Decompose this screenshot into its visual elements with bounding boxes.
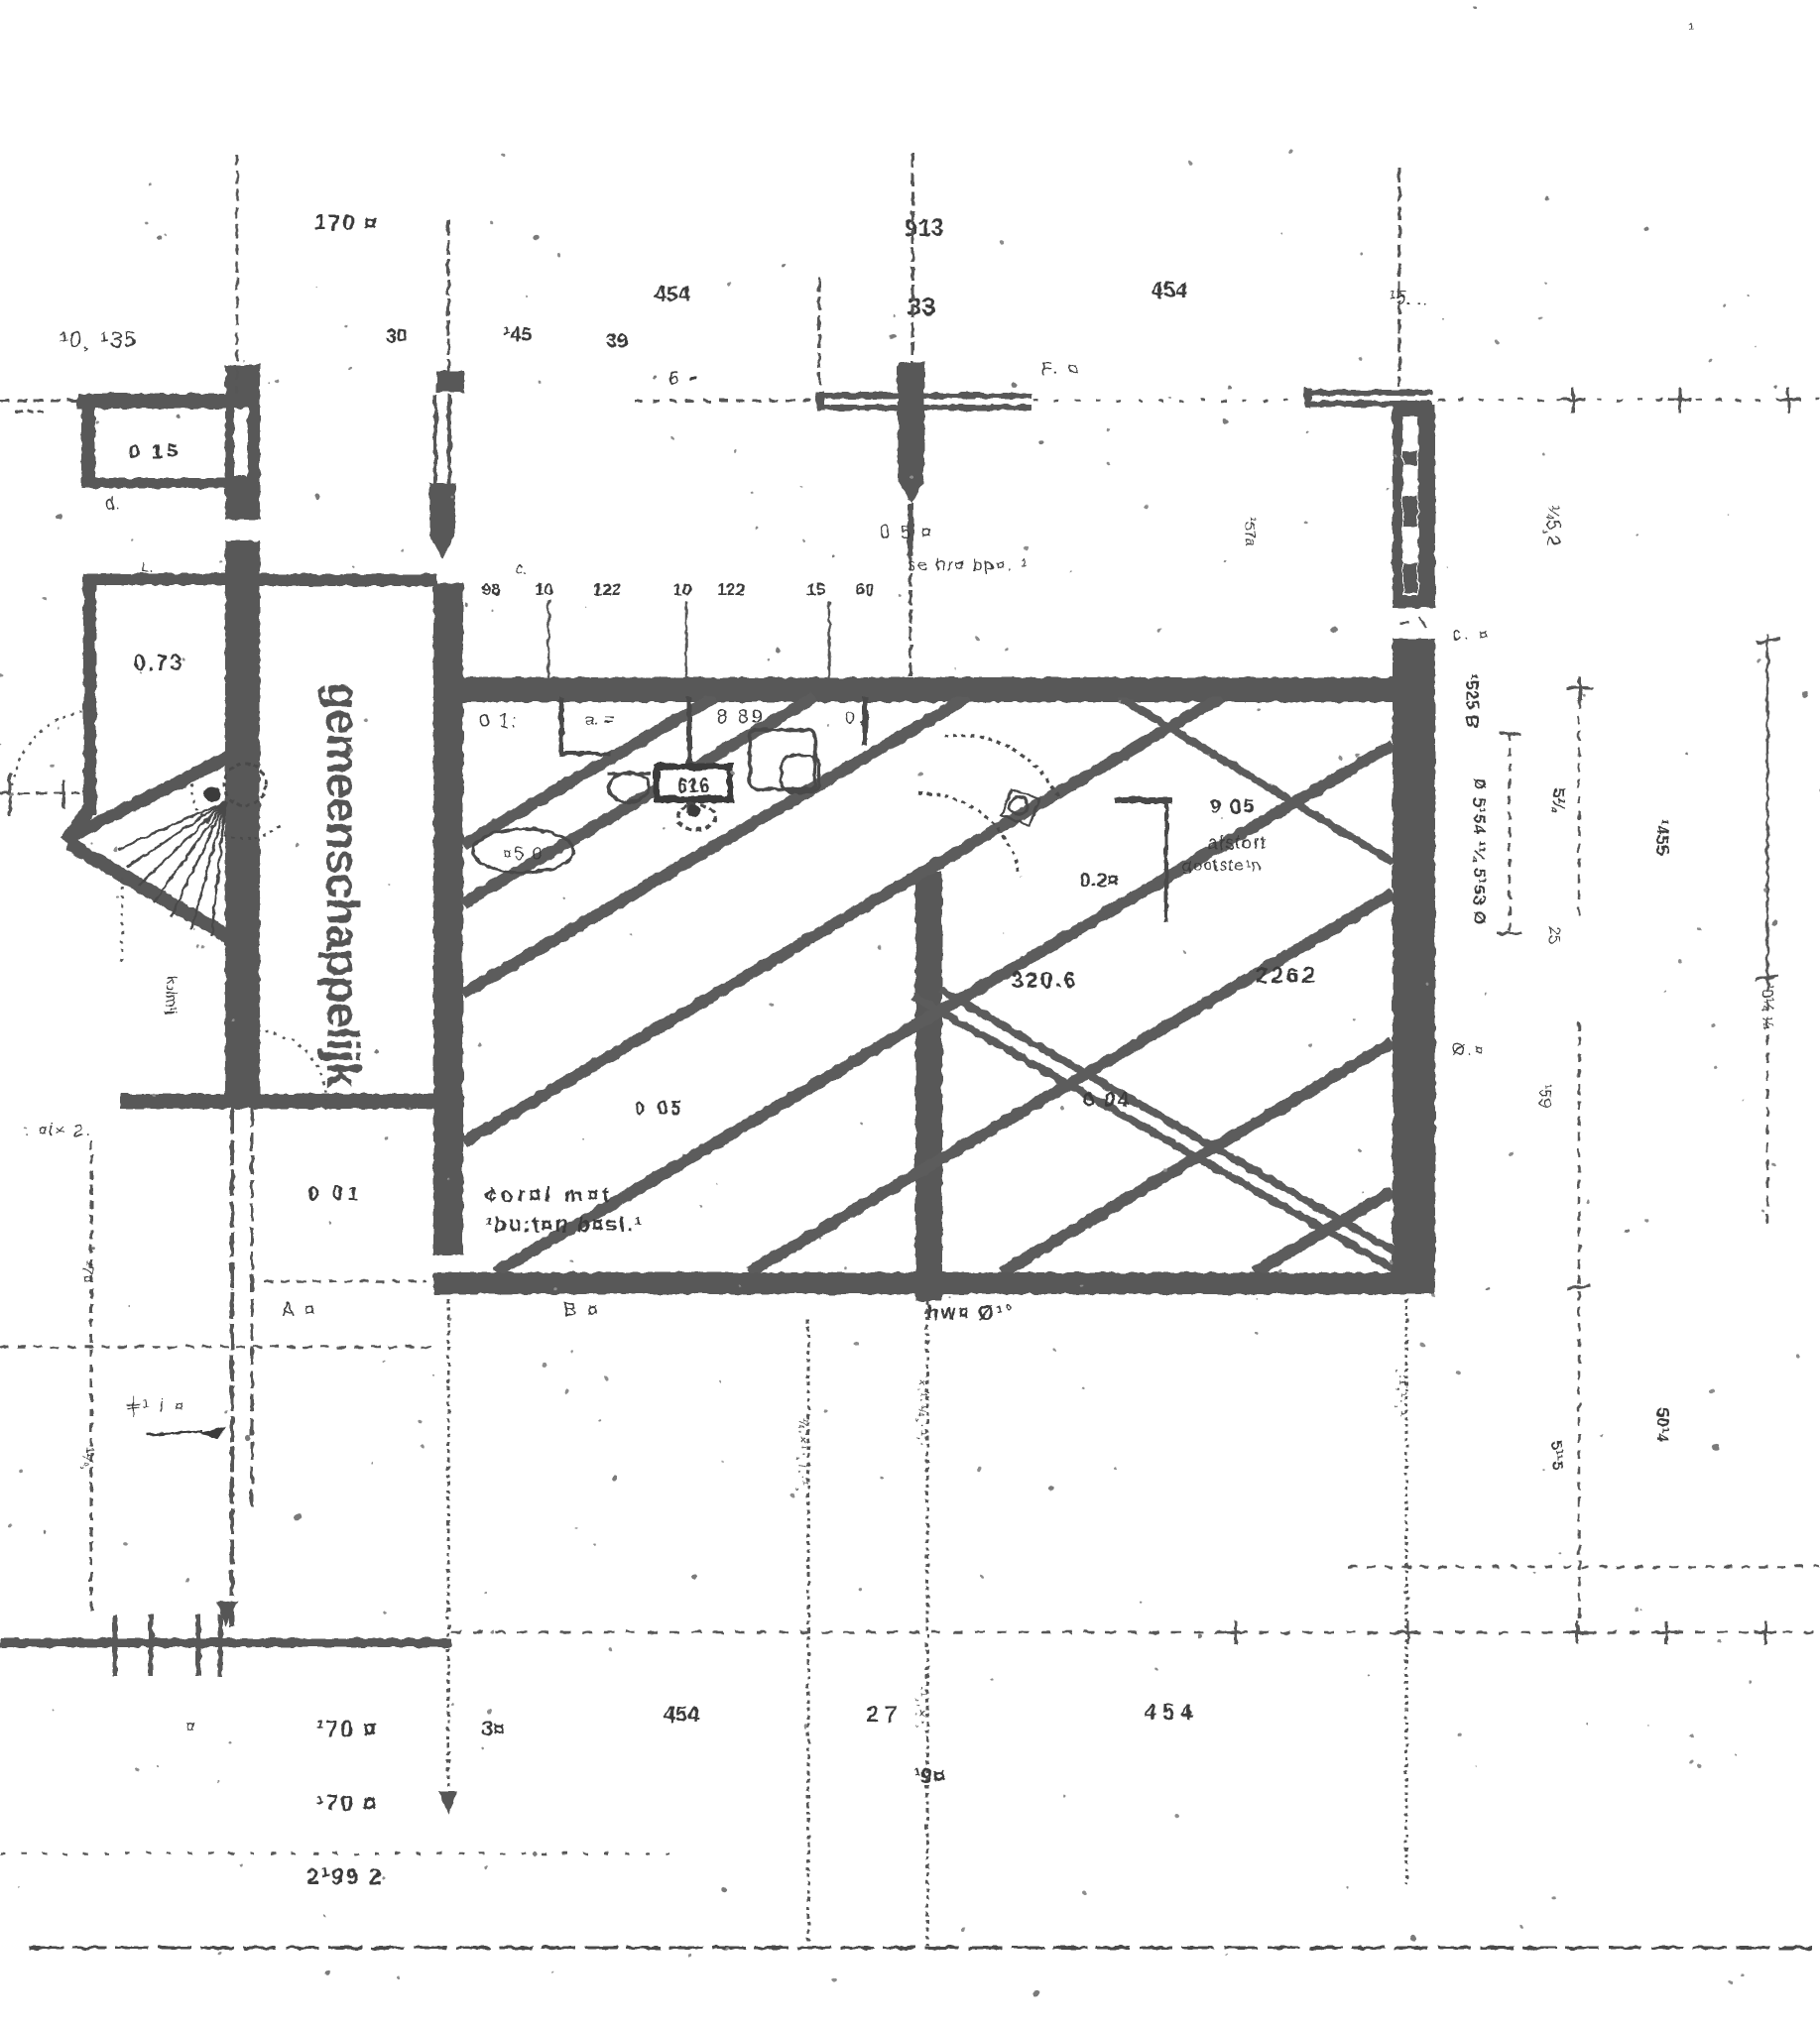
svg-text:10: 10	[673, 580, 692, 599]
svg-text:616: 616	[676, 776, 709, 797]
svg-text:F. ¤: F. ¤	[1041, 359, 1080, 378]
svg-text:¹45: ¹45	[504, 324, 533, 346]
svg-text:0.73: 0.73	[134, 651, 184, 675]
svg-text:320.6: 320.6	[1011, 967, 1078, 993]
svg-text:¢or¤l m¤t: ¢or¤l m¤t	[485, 1184, 613, 1207]
svg-text:0 1:: 0 1:	[479, 711, 519, 732]
svg-text:¹0¸ ¹35: ¹0¸ ¹35	[61, 327, 139, 353]
svg-text:¹5. ..: ¹5. ..	[1390, 289, 1427, 309]
svg-text:15: 15	[807, 580, 826, 599]
svg-text:hw¤ Ø¹°: hw¤ Ø¹°	[926, 1302, 1015, 1324]
svg-text:gootste¹n: gootste¹n	[1182, 856, 1262, 875]
svg-text:6 ╺: 6 ╺	[668, 368, 698, 390]
svg-text:2¹99 2: 2¹99 2	[306, 1863, 383, 1889]
svg-text:5¹¹5: 5¹¹5	[1547, 1440, 1566, 1470]
svg-text:2262: 2262	[1255, 962, 1317, 988]
svg-text:c. ¤: c. ¤	[1452, 625, 1491, 644]
svg-text:2 7: 2 7	[867, 1702, 898, 1727]
svg-text:¹57a: ¹57a	[1242, 517, 1259, 547]
svg-text:0 05: 0 05	[635, 1098, 685, 1120]
svg-text:0 5 ¤: 0 5 ¤	[880, 523, 934, 542]
svg-text:¹bu:t¤n b¤sl.¹: ¹bu:t¤n b¤sl.¹	[485, 1214, 644, 1237]
svg-text:0 ,: 0 ,	[845, 708, 864, 727]
svg-text:c.: c.	[516, 560, 528, 577]
svg-text:0 01: 0 01	[308, 1183, 363, 1205]
svg-text:454: 454	[655, 282, 691, 306]
svg-text:¹525 B: ¹525 B	[1462, 674, 1482, 728]
svg-text:913: 913	[905, 215, 944, 242]
svg-text:¹7¤: ¹7¤	[79, 1261, 96, 1283]
svg-text:60: 60	[856, 580, 875, 599]
svg-text:d.: d.	[105, 494, 119, 513]
svg-text:122: 122	[593, 580, 621, 599]
svg-text:39: 39	[606, 330, 628, 352]
svg-text:50¹4: 50¹4	[1653, 1408, 1672, 1443]
svg-text:5¼: 5¼	[1549, 788, 1568, 813]
svg-text:B ¤: B ¤	[563, 1300, 601, 1321]
svg-text:3¤: 3¤	[481, 1718, 505, 1740]
svg-text:¹70 ¤: ¹70 ¤	[316, 1716, 378, 1741]
svg-text:A ¤: A ¤	[282, 1300, 317, 1321]
svg-text:¹9¤: ¹9¤	[913, 1763, 945, 1788]
svg-text:·¹¸‚×·¸: ·¹¸‚×·¸	[915, 1686, 930, 1732]
svg-text:¤: ¤	[185, 1717, 195, 1736]
svg-text:454: 454	[664, 1702, 700, 1727]
svg-text:¹¼¸: ¹¼¸	[79, 1448, 96, 1471]
svg-text:30: 30	[386, 326, 407, 347]
svg-text:170 ¤: 170 ¤	[313, 210, 378, 235]
svg-text:0 15: 0 15	[129, 440, 182, 463]
svg-text:¹70 ¤: ¹70 ¤	[316, 1790, 378, 1816]
svg-text:¹59: ¹59	[1536, 1084, 1553, 1107]
svg-text:0 04: 0 04	[1083, 1089, 1132, 1112]
svg-text:454: 454	[1152, 278, 1188, 302]
svg-text:¸·¹‚ׂ¹·¸¹: ¸·¹‚ׂ¹·¸¹	[1395, 1369, 1409, 1417]
svg-text:98: 98	[482, 580, 501, 599]
svg-text:kدlm¹j: kدlm¹j	[163, 977, 180, 1015]
svg-text:a. =: a. =	[585, 710, 614, 729]
svg-text:afstort: afstort	[1207, 833, 1267, 854]
svg-text:¼‚×¹·¸i¸·¹¸: ¼‚×¹·¸i¸·¹¸	[796, 1418, 811, 1494]
svg-text:10: 10	[536, 580, 554, 599]
svg-text:Ø 5¹54 ¹¼ 5¹53 Ø: Ø 5¹54 ¹¼ 5¹53 Ø	[1470, 777, 1489, 925]
svg-text:4 5 4: 4 5 4	[1145, 1700, 1194, 1725]
svg-text:Ø.¤: Ø.¤	[1452, 1040, 1485, 1059]
svg-text:L.: L.	[141, 559, 154, 576]
svg-text:se hr¤ bp¤. ¹: se hr¤ bp¤. ¹	[908, 555, 1028, 574]
svg-text:gemeenschappelijk: gemeenschappelijk	[317, 682, 369, 1088]
svg-text:. ¤i× 2.: . ¤i× 2.	[25, 1121, 92, 1139]
svg-text:¹: ¹	[1688, 19, 1694, 39]
svg-text:0.2¤: 0.2¤	[1080, 870, 1119, 892]
svg-text:9 05: 9 05	[1210, 796, 1257, 818]
svg-text:8 89: 8 89	[716, 707, 765, 728]
svg-text:122: 122	[717, 580, 745, 599]
svg-text:¤5 0: ¤5 0	[503, 844, 544, 863]
svg-text:¼5¸2: ¼5¸2	[1543, 505, 1563, 545]
svg-text:×‚¹·¼¸·¹‚·: ×‚¹·¼¸·¹‚·	[915, 1378, 930, 1448]
svg-text:¹455: ¹455	[1652, 819, 1672, 855]
svg-text:25: 25	[1545, 926, 1562, 944]
svg-text:╪¹ i ¤: ╪¹ i ¤	[126, 1395, 187, 1418]
